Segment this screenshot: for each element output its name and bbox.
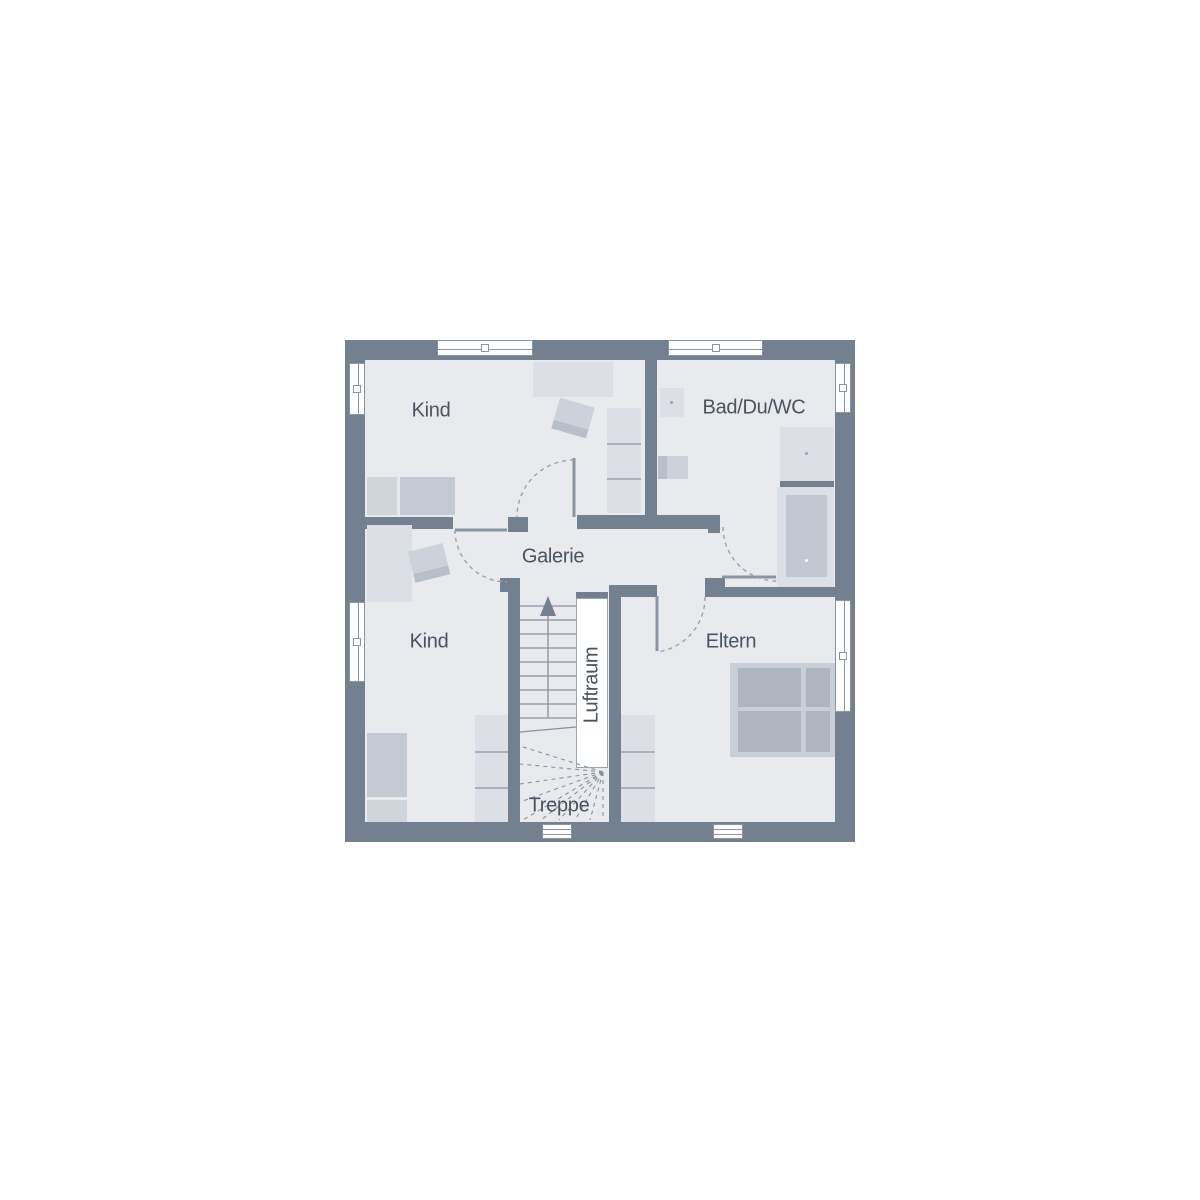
wall-kind1-bad: [645, 360, 657, 529]
wall-jamb-eltern-door: [705, 578, 725, 597]
wardrobe-kind1: [533, 362, 613, 397]
basin-drain: [670, 401, 673, 404]
room-label-treppe: Treppe: [529, 795, 590, 818]
closet-kind1: [607, 408, 641, 513]
window-frame: [714, 834, 742, 835]
shower: [780, 427, 834, 481]
window-right-bad: [835, 363, 851, 413]
bed-eltern-mattress: [738, 668, 801, 707]
window-bottom-treppe: [542, 824, 572, 839]
closet-divider: [475, 751, 508, 753]
closet-divider: [607, 443, 641, 445]
wall-stair-right: [609, 585, 621, 822]
window-handle: [353, 385, 361, 393]
wall-stub-eltern: [621, 585, 657, 597]
window-left-kind1: [349, 363, 365, 415]
window-right-eltern: [835, 600, 851, 712]
closet-kind2: [475, 715, 508, 822]
window-handle: [353, 638, 361, 646]
window-top-right: [668, 340, 763, 356]
wall-jamb-bad-door: [708, 515, 720, 533]
bed-kind2-pillow: [367, 800, 407, 822]
wardrobe-kind2: [367, 525, 412, 602]
window-frame: [714, 829, 742, 830]
wall-jamb-stair: [500, 578, 520, 592]
outer-wall-bottom: [345, 822, 855, 842]
wall-stair-left: [508, 578, 520, 822]
bathtub-platform: [777, 487, 834, 587]
bathtub: [786, 495, 827, 577]
bed-eltern-mattress: [738, 711, 801, 752]
window-left-kind2: [349, 602, 365, 682]
room-label-kind2: Kind: [410, 631, 449, 654]
outer-wall-top: [345, 340, 855, 360]
bed-kind1: [400, 477, 455, 515]
wall-bad-bottom: [577, 515, 720, 529]
outer-wall-right: [835, 340, 855, 842]
room-label-kind1: Kind: [412, 400, 451, 423]
window-bottom-eltern: [713, 824, 743, 839]
closet-divider: [475, 787, 508, 789]
bed-eltern-pillow: [806, 711, 830, 752]
room-label-eltern: Eltern: [706, 631, 756, 654]
wc-tank: [658, 456, 667, 479]
floor-plan: Kind Bad/Du/WC Galerie Kind Eltern Luftr…: [345, 340, 855, 842]
closet-divider: [621, 787, 655, 789]
wc-bowl: [667, 456, 688, 479]
bed-eltern: [730, 663, 835, 757]
tub-drain: [805, 559, 808, 562]
window-frame: [543, 829, 571, 830]
window-handle: [839, 652, 847, 660]
bed-eltern-pillow: [806, 668, 830, 707]
closet-eltern: [621, 715, 655, 822]
bed-kind2: [367, 733, 407, 797]
shower-drain: [805, 452, 808, 455]
page: Kind Bad/Du/WC Galerie Kind Eltern Luftr…: [0, 0, 1200, 1200]
window-top-left: [437, 340, 533, 356]
wall-jamb-kind-doors: [508, 517, 528, 532]
washbasin: [660, 388, 684, 417]
closet-divider: [621, 751, 655, 753]
window-handle: [839, 384, 847, 392]
bed-kind1-pillow: [367, 477, 397, 515]
room-label-luftraum: Luftraum: [581, 647, 604, 724]
window-handle: [481, 344, 489, 352]
room-label-bad: Bad/Du/WC: [703, 397, 806, 420]
outer-wall-left: [345, 340, 365, 842]
window-handle: [712, 344, 720, 352]
room-label-galerie: Galerie: [522, 546, 584, 569]
closet-divider: [607, 478, 641, 480]
window-frame: [543, 834, 571, 835]
